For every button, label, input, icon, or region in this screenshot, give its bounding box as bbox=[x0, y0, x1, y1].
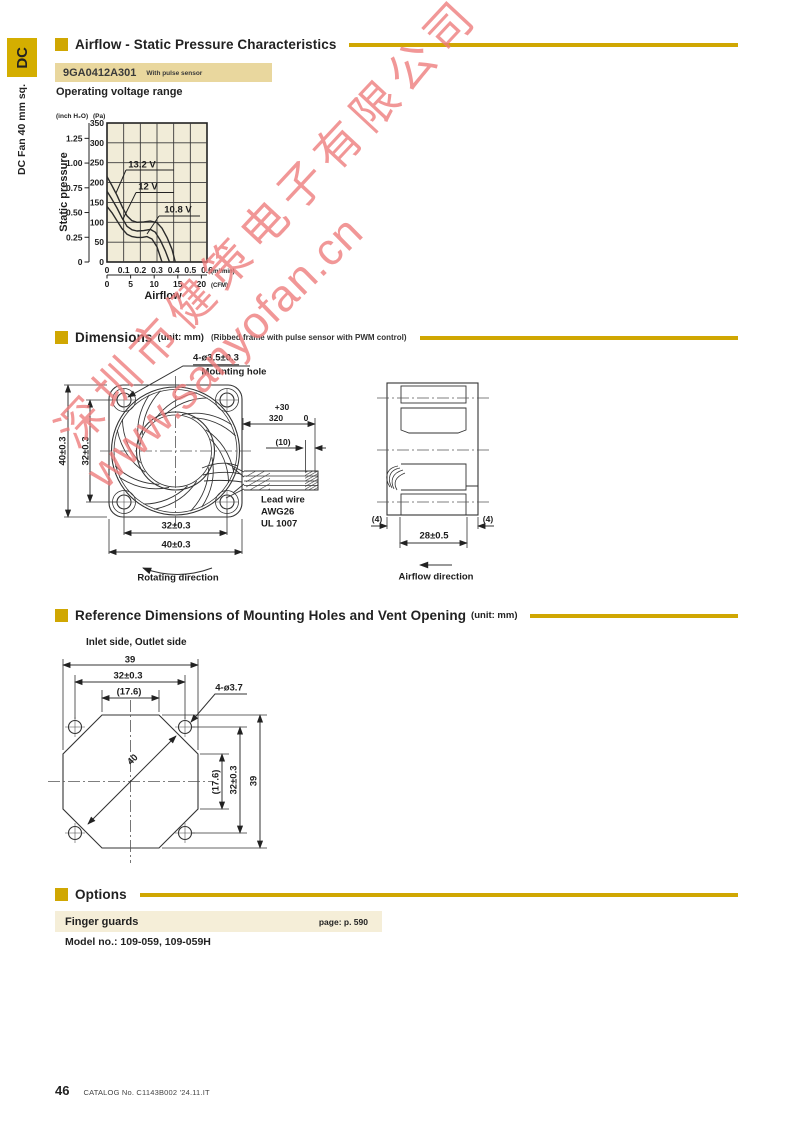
chart-text: 150 bbox=[90, 197, 104, 207]
chart-text: 12 V bbox=[138, 182, 158, 193]
chart-text: 0.2 bbox=[134, 265, 146, 275]
chart-text: 250 bbox=[90, 158, 104, 168]
dim-label: 32±0.3 bbox=[81, 437, 91, 466]
chart-text: 1.25 bbox=[66, 133, 83, 143]
dim-label: (17.6) bbox=[211, 770, 221, 795]
chart-text: Airflow bbox=[144, 290, 182, 302]
chart-text: 100 bbox=[90, 217, 104, 227]
chart-text: 15 bbox=[173, 279, 183, 289]
chart-text: 0.1 bbox=[118, 265, 130, 275]
catalog-page: DC DC Fan 40 mm sq. Airflow - Static Pre… bbox=[0, 0, 794, 1123]
dim-label: Mounting hole bbox=[202, 367, 267, 377]
chart-text: 200 bbox=[90, 178, 104, 188]
dim-label: 28±0.5 bbox=[420, 531, 449, 541]
dim-label: 39 bbox=[125, 655, 136, 665]
chart-text: 13.2 V bbox=[128, 160, 156, 171]
chart-text: 5 bbox=[128, 279, 133, 289]
dim-label: 40±0.3 bbox=[58, 437, 68, 466]
chart-text: 0 bbox=[105, 279, 110, 289]
dim-label: (17.6) bbox=[117, 687, 142, 697]
dim-label: Airflow direction bbox=[399, 572, 474, 582]
dim-label: Lead wire bbox=[261, 495, 305, 505]
dim-label: 39 bbox=[249, 776, 259, 787]
dim-label: 32±0.3 bbox=[162, 521, 191, 531]
chart-text: 50 bbox=[95, 237, 105, 247]
dim-label: 4-ø3.5±0.3 bbox=[193, 353, 239, 365]
dim-label: (4) bbox=[483, 515, 493, 524]
chart-text: 0.4 bbox=[168, 265, 180, 275]
dim-label: Inlet side, Outlet side bbox=[86, 638, 187, 648]
chart-text: (m³/min) bbox=[211, 268, 235, 275]
chart-text: (Pa) bbox=[93, 113, 105, 120]
chart-text: 300 bbox=[90, 138, 104, 148]
dim-label: 32±0.3 bbox=[114, 671, 143, 681]
dim-label: 32±0.3 bbox=[229, 766, 239, 795]
dim-label: (4) bbox=[372, 515, 382, 524]
chart-text: 0 bbox=[105, 265, 110, 275]
dim-label: Rotating direction bbox=[137, 573, 218, 583]
chart-text: 0.3 bbox=[151, 265, 163, 275]
chart-text: 0.5 bbox=[184, 265, 196, 275]
dim-label: AWG26 bbox=[261, 507, 294, 517]
dim-label: (10) bbox=[275, 438, 290, 447]
dim-label: 0 bbox=[304, 414, 309, 423]
dim-label: 40±0.3 bbox=[162, 540, 191, 550]
chart-text: 20 bbox=[197, 279, 207, 289]
chart-text: 0.25 bbox=[66, 232, 83, 242]
dim-label: 4-ø3.7 bbox=[215, 683, 242, 693]
chart-text: 10.8 V bbox=[164, 205, 192, 216]
airflow-static-pressure-chart: 05010015020025030035000.250.500.751.001.… bbox=[50, 105, 320, 310]
chart-text: 0 bbox=[78, 257, 83, 267]
dim-label: UL 1007 bbox=[261, 519, 297, 529]
dim-label: 320 bbox=[269, 414, 283, 423]
chart-text: (inch H₂O) bbox=[56, 113, 88, 120]
dim-label: +30 bbox=[275, 403, 289, 412]
front-view-drawing bbox=[64, 366, 326, 575]
chart-text: 10 bbox=[149, 279, 159, 289]
chart-text: 0 bbox=[99, 257, 104, 267]
chart-text: (CFM) bbox=[211, 283, 228, 289]
chart-text: Static pressure bbox=[58, 152, 70, 231]
